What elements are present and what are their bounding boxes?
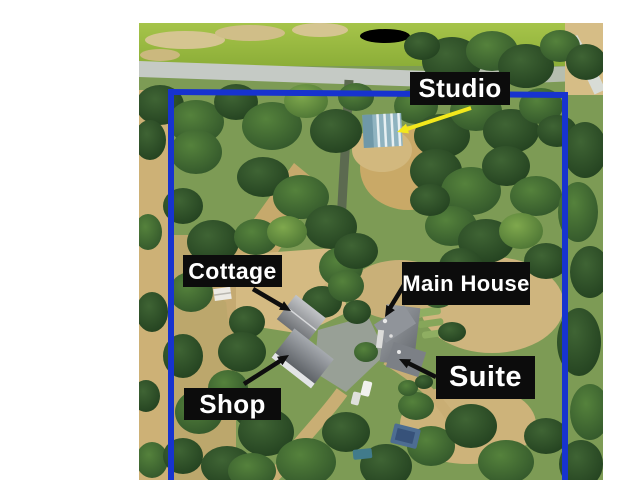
cottage-label-text: Cottage	[188, 258, 276, 285]
shop-label-text: Shop	[199, 389, 266, 420]
annotated-aerial-property-map: Studio Cottage Main House Shop Suite	[0, 0, 640, 480]
studio-label: Studio	[410, 72, 510, 105]
suite-label: Suite	[436, 356, 535, 399]
studio-building	[362, 113, 403, 148]
shop-label: Shop	[184, 388, 281, 420]
main-house-label: Main House	[402, 262, 530, 305]
teal-car	[353, 448, 373, 460]
suite-label-text: Suite	[449, 361, 522, 394]
cottage-label: Cottage	[183, 255, 282, 287]
shed-building	[213, 287, 232, 301]
main-house-label-text: Main House	[402, 271, 529, 297]
studio-label-text: Studio	[418, 73, 501, 104]
aerial-photo	[0, 0, 640, 480]
